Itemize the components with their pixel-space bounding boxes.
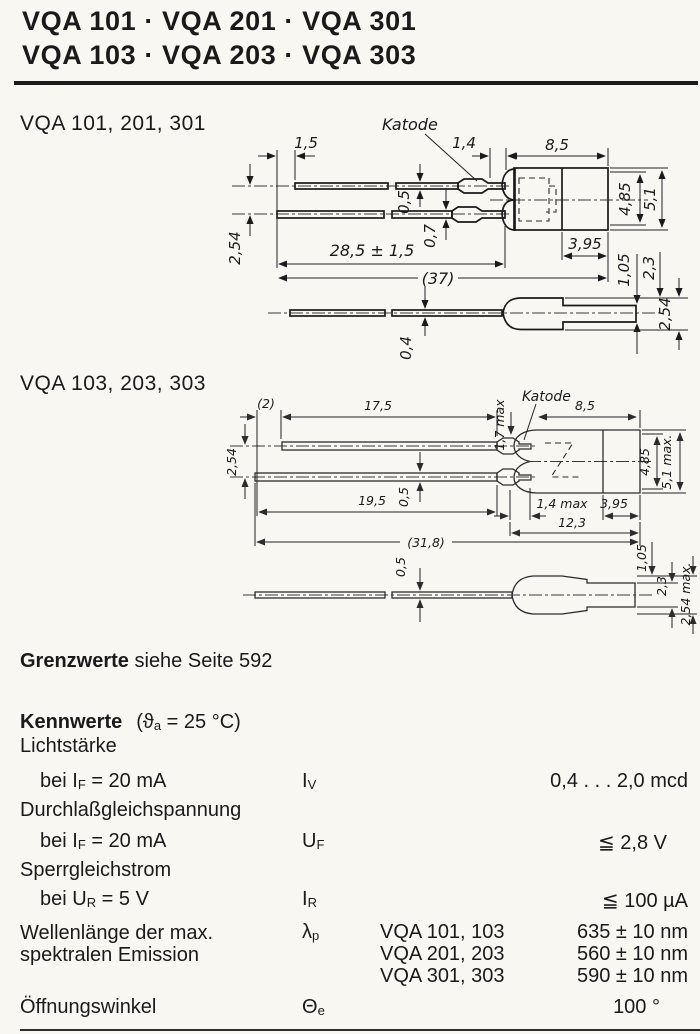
param-value: 635 ± 10 nm [577,921,688,944]
param-symbol: IV [302,770,316,793]
dim-side-lead-thick: 0,4 [397,336,415,360]
dim2-total-len: (31,8) [407,535,445,550]
dim2-crimp-len: 1,4 max [536,496,588,511]
dim-dome-len: 3,95 [568,235,601,253]
param-value: 0,4 . . . 2,0 mcd [550,770,688,793]
wavelength-row-1: λp VQA 101, 103 635 ± 10 nm [0,921,700,945]
param-row-durchlassspannung: bei IF = 20 mA UF ≦ 2,8 V [0,830,700,854]
param-symbol: Θe [302,996,325,1019]
dim2-lead-bottom-len: 19,5 [358,493,386,508]
dim-body-dia-outer: 5,1 [641,187,659,211]
led-topview-vqa101 [232,168,648,230]
dim-crimp-len: 1,4 [452,134,476,152]
param-group-lichtstaerke: Lichtstärke [20,734,117,758]
dim2-body-total-len: 12,3 [558,515,586,530]
param-value: 560 ± 10 nm [577,943,688,966]
datasheet-page: VQA 101 · VQA 201 · VQA 301 VQA 103 · VQ… [0,0,700,1034]
dim-body-dia-inner: 4,85 [616,182,634,215]
type-list: VQA 201, 203 [380,943,505,966]
param-value: 590 ± 10 nm [577,965,688,988]
dim2-lead-top-len: 17,5 [364,398,392,413]
kennwerte-condition: (ϑa = 25 °C) [136,711,241,733]
param-condition: bei IF = 20 mA [40,770,166,793]
dimensions-sideview-vqa101: 2,54 0,4 [397,278,688,360]
wavelength-row-2: VQA 201, 203 560 ± 10 nm [0,943,700,967]
page-title: VQA 101 · VQA 201 · VQA 301 VQA 103 · VQ… [22,4,416,72]
dim2-lead-thick: 0,5 [396,487,411,507]
led-sideview-vqa101 [268,298,660,330]
param-symbol: λp [302,921,319,944]
grenzwerte-label: Grenzwerte [20,650,129,672]
type-list: VQA 301, 303 [380,965,505,988]
dim-lead-len: 28,5 ± 1,5 [330,241,415,260]
grenzwerte-line: Grenzwerte siehe Seite 592 [20,649,272,673]
dim2-body-dia-inner: 4,85 [637,448,652,476]
param-row-sperrstrom: bei UR = 5 V IR ≦ 100 µA [0,888,700,912]
type-list: VQA 101, 103 [380,921,505,944]
dim2-side-lead-thick: 0,5 [393,557,408,577]
dim2-lead-pitch: 2,54 [224,448,239,476]
title-line-2: VQA 103 · VQA 203 · VQA 303 [22,38,416,72]
dimensions-topview-vqa101: 1,5 Katode 1,4 8,5 4,85 5,1 3,95 [226,115,668,354]
param-symbol: UF [302,830,324,853]
param-row-oeffnungswinkel: Öffnungswinkel Θe 100 ° [0,996,700,1020]
param-name: Öffnungswinkel [20,996,156,1019]
dim-body-len: 8,5 [545,136,569,154]
kennwerte-label: Kennwerte [20,711,122,733]
dim-side-step: 1,05 [615,253,633,286]
led-topview-vqa103 [230,430,652,493]
param-group-durchlassspannung: Durchlaßgleichspannung [20,798,241,822]
dim-side-height: 2,54 [656,297,674,330]
dim2-dome-len: 3,95 [600,496,628,511]
dim-lead-offset: 1,5 [294,134,318,152]
dim2-side-body: 2,3 [654,576,669,596]
dimensions-sideview-vqa103: 1,05 2,3 2,54 max. 0,5 [393,542,697,634]
param-value: ≦ 2,8 V [598,830,667,855]
dim-lead-thick-top: 0,5 [395,190,413,214]
dim-total-len: (37) [422,269,455,288]
dimensions-topview-vqa103: (2) 17,5 1,7 max Katode 8,5 2,54 0,5 19,… [224,389,686,550]
katode-label: Katode [382,115,438,134]
katode-label-2: Katode [522,389,571,405]
dim-lead-thick-bottom: 0,7 [421,224,439,248]
bottom-divider [20,1029,700,1031]
dim2-body-dia-outer: 5,1 max. [659,434,674,489]
dim-lead-pitch: 2,54 [226,231,244,264]
wavelength-row-3: VQA 301, 303 590 ± 10 nm [0,965,700,989]
dim2-body-len: 8,5 [575,398,595,413]
dimension-drawing-vqa103: (2) 17,5 1,7 max Katode 8,5 2,54 0,5 19,… [0,370,700,644]
dim2-crimp-thick: 1,7 max [492,399,507,451]
title-line-1: VQA 101 · VQA 201 · VQA 301 [22,4,416,38]
param-condition: bei UR = 5 V [40,888,149,911]
led-sideview-vqa103 [243,576,652,614]
param-row-lichtstaerke: bei IF = 20 mA IV 0,4 . . . 2,0 mcd [0,770,700,794]
param-symbol: IR [302,888,317,911]
dim2-lead-offset: (2) [257,396,275,411]
param-value: 100 ° [613,996,660,1019]
grenzwerte-rest: siehe Seite 592 [129,650,272,672]
top-divider [14,81,698,85]
dim2-side-step: 1,05 [634,544,649,572]
param-group-sperrstrom: Sperrgleichstrom [20,858,171,882]
dim2-side-height: 2,54 max. [678,562,693,625]
param-condition: bei IF = 20 mA [40,830,166,853]
dim-side-body: 2,3 [640,256,658,280]
dimension-drawing-vqa101: 1,5 Katode 1,4 8,5 4,85 5,1 3,95 [0,108,700,370]
param-value: ≦ 100 µA [602,888,688,913]
